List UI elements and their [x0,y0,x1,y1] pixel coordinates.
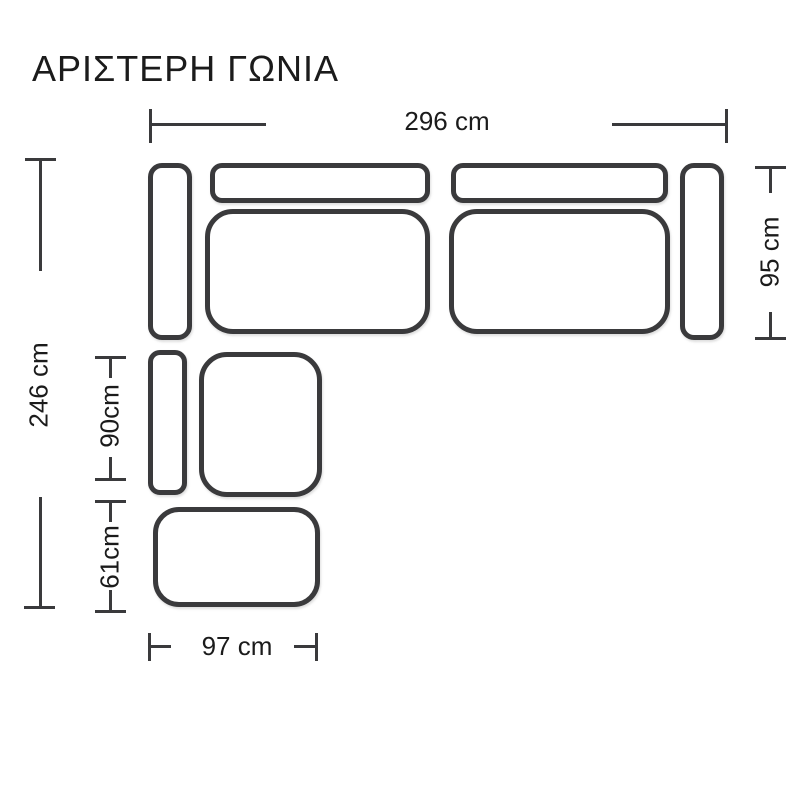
page-title: ΑΡΙΣΤΕΡΗ ΓΩΝΙΑ [32,48,339,90]
dim-line [769,166,772,193]
dim-line [109,356,112,378]
dim-tick [755,337,786,340]
dim-label-corner-depth: 90cm [95,384,126,448]
corner-armrest [148,350,187,495]
dim-label-ottoman-depth: 61cm [95,525,126,589]
dim-line [294,645,317,648]
seat-left [205,209,430,334]
sofa-floorplan-diagram: ΑΡΙΣΤΕΡΗ ΓΩΝΙΑ 296 cm 95 cm 246 cm 90cm … [0,0,800,800]
dim-tick [95,478,126,481]
dim-tick [149,109,152,143]
dim-label-total-width: 296 cm [404,106,489,137]
dim-line [769,312,772,339]
right-armrest [680,163,724,340]
dim-line [149,123,266,126]
dim-line [612,123,727,126]
dim-line [148,645,171,648]
backrest-right [451,163,668,203]
left-armrest [148,163,192,340]
dim-tick [24,606,55,609]
seat-right [449,209,670,334]
dim-label-ottoman-width: 97 cm [202,631,273,662]
corner-seat [199,352,322,497]
dim-label-depth-right: 95 cm [755,217,786,288]
dim-line [39,158,42,271]
dim-tick [725,109,728,143]
dim-line [109,500,112,522]
dim-tick [315,633,318,661]
dim-tick [95,610,126,613]
ottoman [153,507,320,607]
dim-line [39,497,42,609]
backrest-left [210,163,430,203]
dim-label-total-depth: 246 cm [24,342,55,427]
